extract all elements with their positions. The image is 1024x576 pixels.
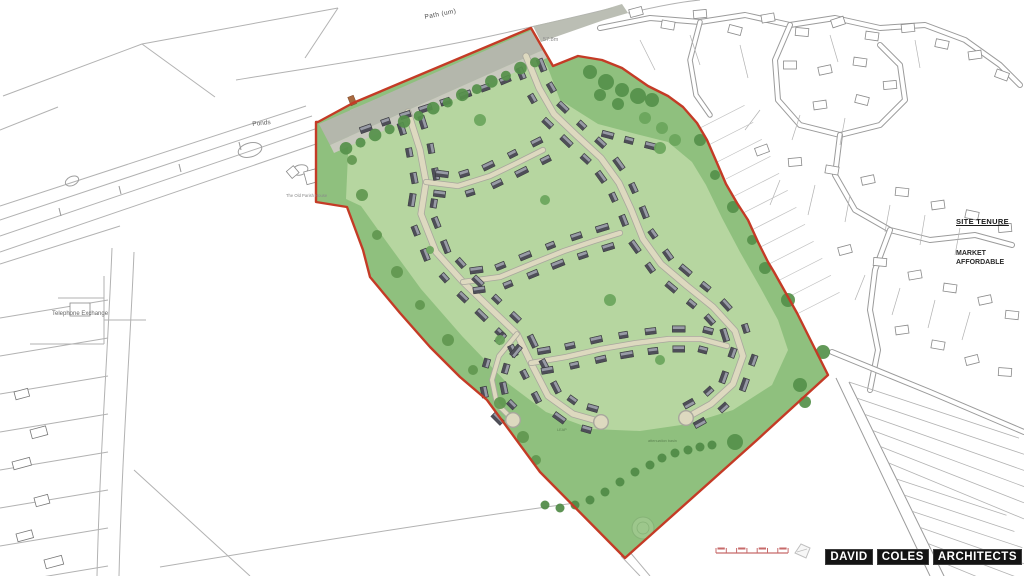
- tenure-legend-item-market: MARKET: [956, 249, 1009, 258]
- tenure-legend-item-affordable: AFFORDABLE: [956, 258, 1009, 267]
- watermark-word: DAVID: [825, 549, 872, 565]
- site-plan-map: [0, 0, 1024, 576]
- architect-watermark: DAVID COLES ARCHITECTS: [825, 549, 1022, 565]
- north-marker-icon: [795, 544, 810, 558]
- scale-bar: [716, 548, 788, 553]
- spot-height-label: 57.8m: [543, 37, 558, 43]
- leap-label: LEAP: [557, 428, 567, 432]
- watermark-word: ARCHITECTS: [933, 549, 1022, 565]
- telephone-exchange-label: Telephone Exchange: [52, 311, 108, 317]
- watermark-word: COLES: [877, 549, 929, 565]
- attenuation-basin-label: attenuation basin: [648, 439, 684, 443]
- tenure-legend-heading: SITE TENURE: [956, 217, 1009, 226]
- tenure-legend: SITE TENURE MARKET AFFORDABLE: [956, 217, 1009, 267]
- old-parish-house-label: The Old Parish House: [286, 193, 327, 198]
- site-plan-canvas: Path (um) 57.8m Ponds The Old Parish Hou…: [0, 0, 1024, 576]
